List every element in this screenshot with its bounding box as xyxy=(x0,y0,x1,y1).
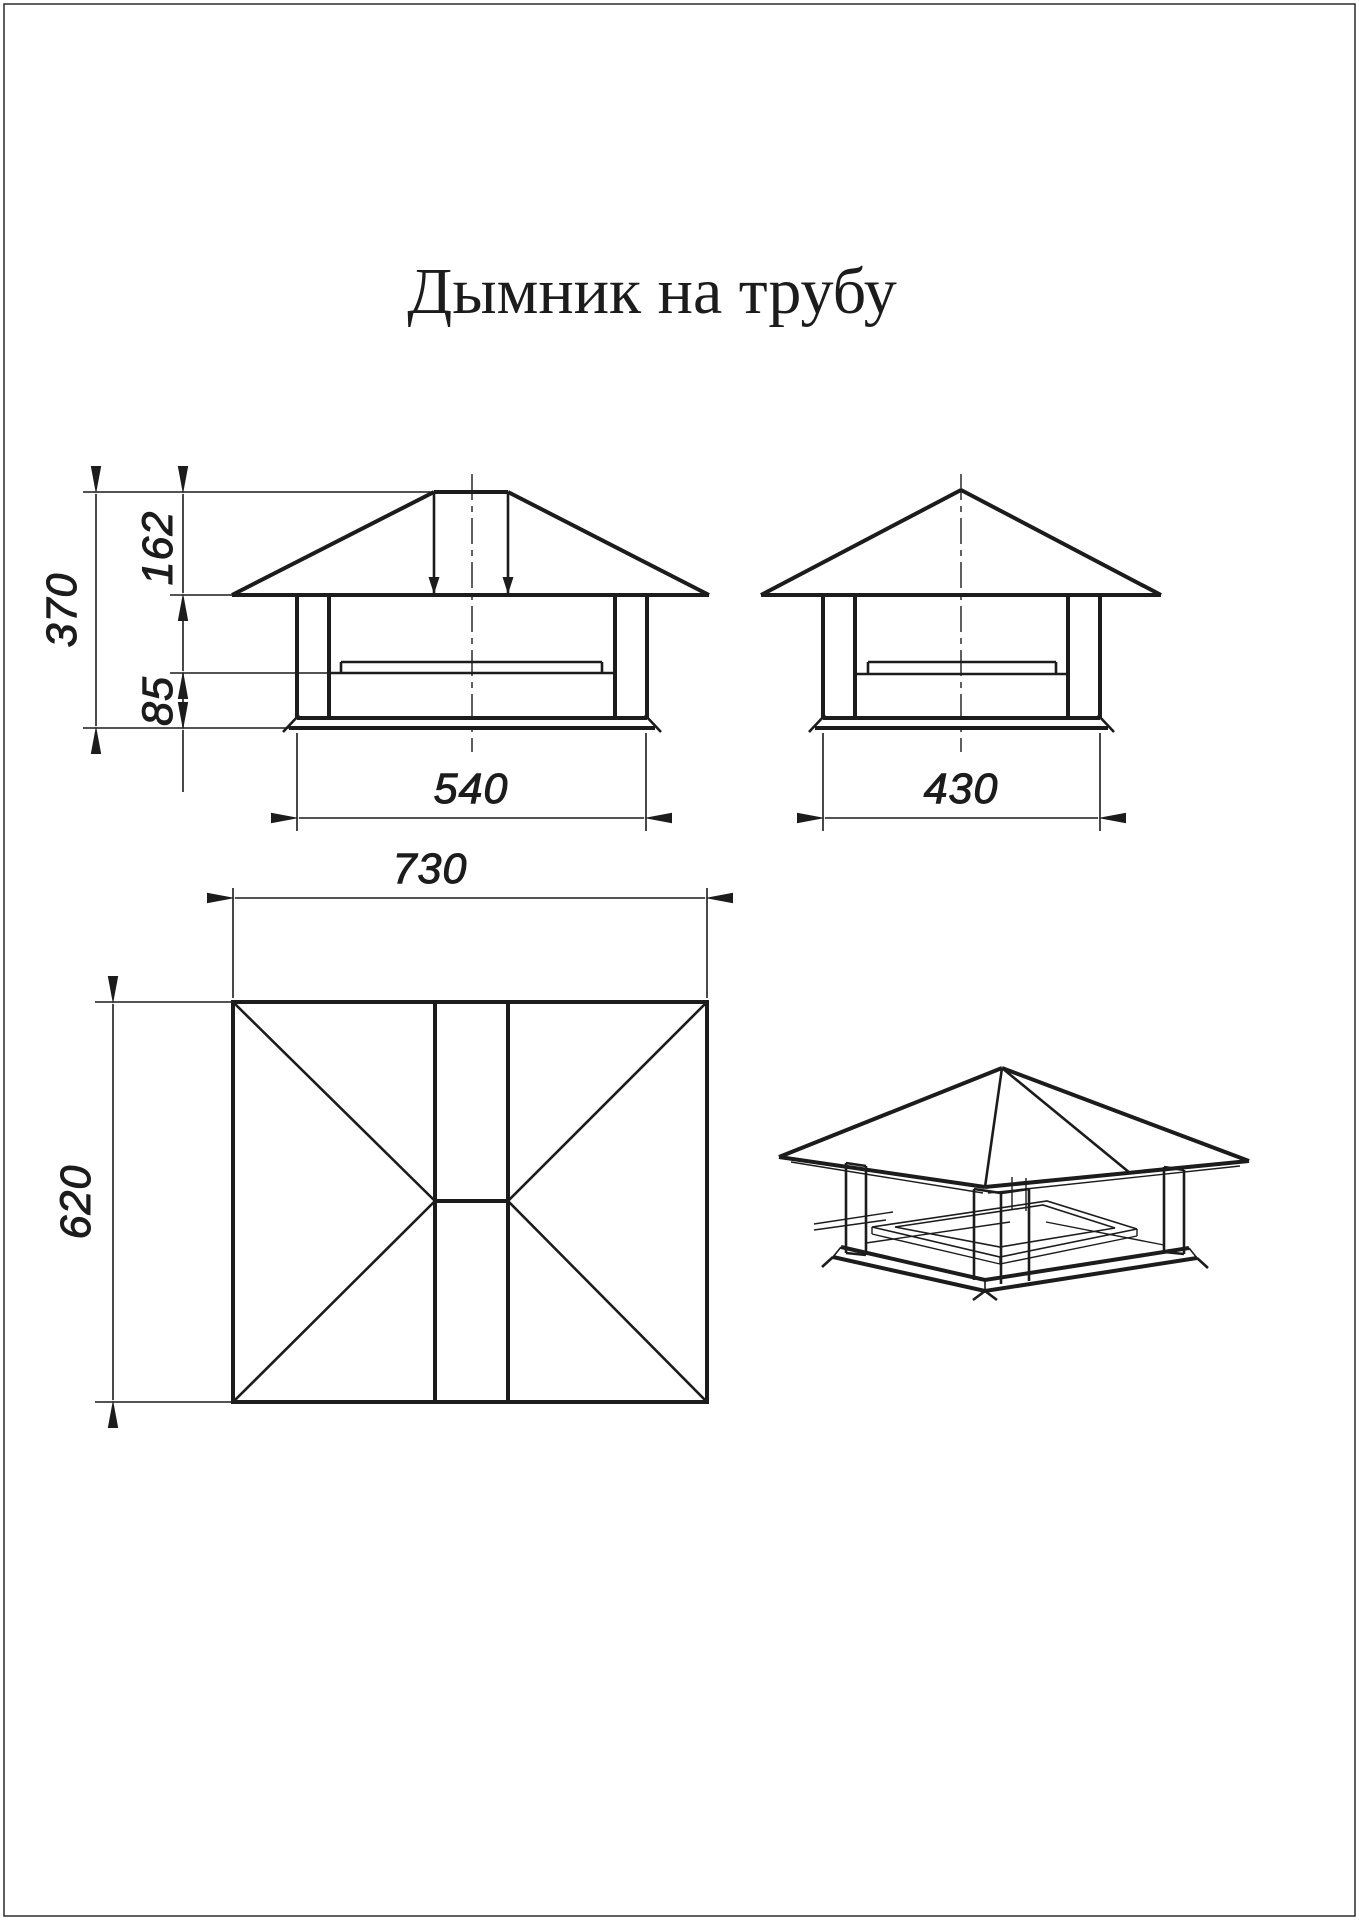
iso-opening-lip-outer xyxy=(872,1201,1137,1257)
plan-depth-label: 620 xyxy=(52,1165,100,1240)
extension-lines xyxy=(95,1002,233,1402)
front-body-height-label: 85 xyxy=(134,676,182,726)
iso-left-post xyxy=(846,1163,866,1255)
iso-front-post xyxy=(974,1189,1029,1284)
front-dim-body-height: 85 xyxy=(134,612,341,792)
plan-dim-width: 730 xyxy=(233,845,707,998)
front-roof-height-label: 162 xyxy=(134,511,182,586)
extension-lines xyxy=(233,888,707,998)
front-total-height-label: 370 xyxy=(38,573,86,648)
iso-shelf-step xyxy=(814,1212,893,1230)
plan-view: 730 620 xyxy=(52,845,707,1402)
iso-right-post xyxy=(1164,1167,1184,1254)
side-view: 430 xyxy=(761,474,1161,831)
side-width-label: 430 xyxy=(924,765,999,813)
front-dim-total-height: 370 xyxy=(38,492,434,728)
drawing-title: Дымник на трубу xyxy=(407,255,896,328)
drawing-sheet: Дымник на трубу 370 162 xyxy=(0,0,1359,1920)
isometric-view xyxy=(779,1068,1249,1300)
plan-width-label: 730 xyxy=(393,845,468,893)
iso-roof-seams xyxy=(985,1068,1130,1187)
technical-drawing: Дымник на трубу 370 162 xyxy=(0,0,1359,1920)
plan-duct-strip xyxy=(435,1002,508,1402)
front-width-label: 540 xyxy=(434,765,509,813)
front-dim-roof-height: 162 xyxy=(134,494,232,595)
front-view: 370 162 85 540 xyxy=(38,474,709,831)
front-duct-lines xyxy=(434,492,508,593)
front-roof-outline xyxy=(232,492,709,595)
front-duct-arrowheads xyxy=(429,577,514,594)
plan-dim-depth: 620 xyxy=(52,1002,233,1402)
